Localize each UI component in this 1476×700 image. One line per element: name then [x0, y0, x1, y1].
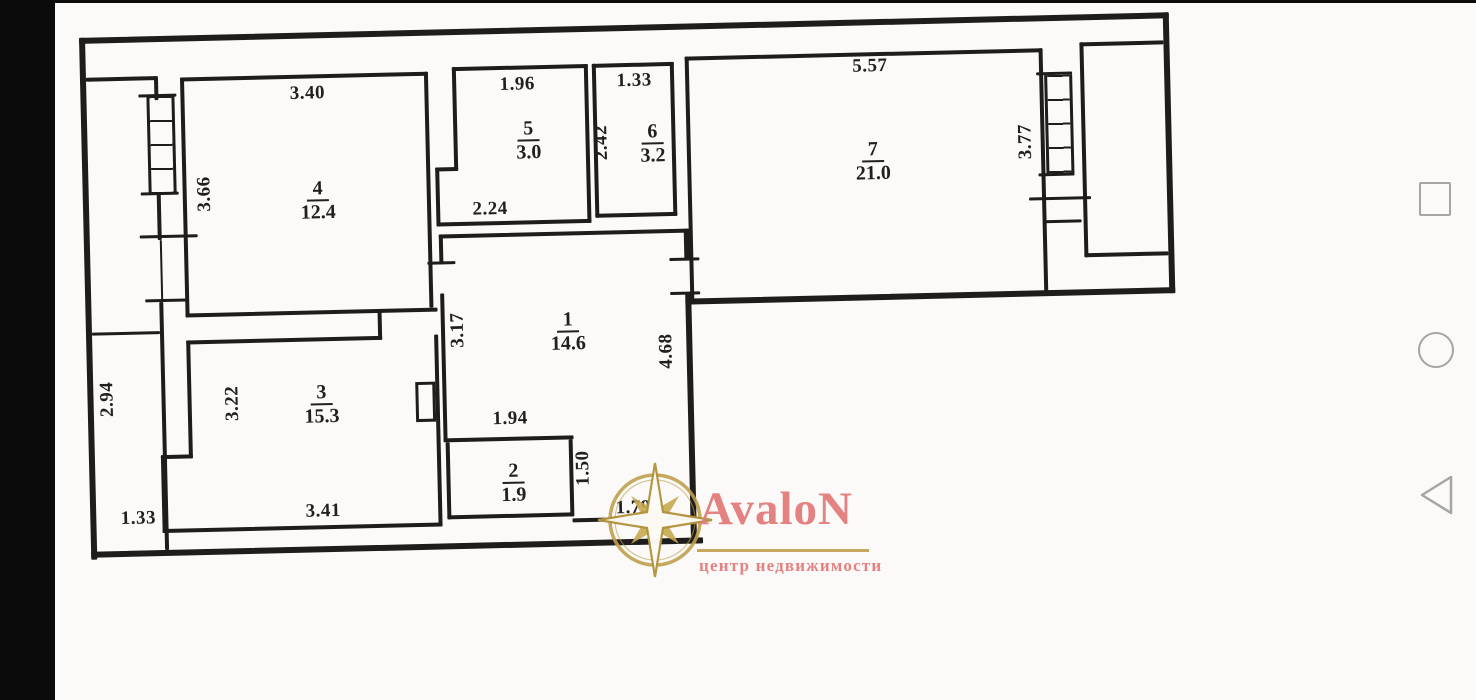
- wall-room2-left: [446, 442, 452, 519]
- window-right-cap-bottom: [1038, 172, 1074, 176]
- wall-balcony-top: [1079, 40, 1163, 46]
- screen: { "plan": { "title": "apartment floor pl…: [0, 0, 1476, 700]
- back-button-triangle-icon[interactable]: [1417, 474, 1455, 516]
- room-area: 21.0: [845, 163, 901, 185]
- wall-room3-left-a: [186, 340, 193, 458]
- wall-outer-top: [79, 12, 1169, 44]
- letterbox-top: [0, 0, 1476, 3]
- floor-plan: 3.40 3.66 1.96 2.24 1.33 2.42 5.57 3.77 …: [79, 12, 1181, 560]
- room-label-4: 4 12.4: [289, 178, 346, 224]
- balcony-door-leaf: [160, 240, 163, 302]
- wall-room5-bottom: [436, 219, 591, 227]
- wall-outer-bottom: [91, 537, 703, 557]
- dimension-label: 2.42: [590, 120, 613, 165]
- wall-room6-bottom: [595, 212, 677, 218]
- room-area: 1.9: [486, 484, 542, 506]
- dimension-label: 1.33: [612, 69, 657, 92]
- dimension-label: 3.22: [221, 381, 244, 426]
- door-tick-room7-b: [670, 291, 700, 295]
- room-number: 2: [502, 461, 525, 485]
- room-number: 7: [862, 139, 885, 163]
- room-number: 4: [306, 178, 329, 202]
- dimension-label: 2.94: [96, 377, 119, 422]
- recents-button-square-icon[interactable]: [1419, 182, 1451, 216]
- wall-room4-left: [180, 77, 190, 317]
- wall-room4-right: [424, 72, 434, 308]
- wall-room5-left-a: [452, 67, 458, 170]
- dimension-label: 4.68: [655, 329, 678, 374]
- room-area: 3.2: [625, 145, 681, 167]
- room-label-2: 2 1.9: [485, 460, 542, 506]
- wall-niche-room3: [415, 382, 436, 422]
- dimension-label: 1.96: [495, 73, 540, 96]
- wall-room7-bottom: [685, 287, 1175, 305]
- wall-room4-bottom: [186, 308, 438, 318]
- room-area: 14.6: [540, 333, 596, 355]
- wall-loggia-top: [86, 76, 156, 82]
- room-area: 15.3: [294, 406, 350, 428]
- door-tick-right-1: [1029, 196, 1091, 200]
- dimension-label: 1.94: [488, 407, 533, 430]
- room-label-7: 7 21.0: [845, 139, 902, 185]
- door-tick-room7-a: [669, 257, 699, 261]
- room-label-3: 3 15.3: [293, 382, 350, 428]
- dimension-label: 1.50: [572, 446, 595, 491]
- room-label-6: 6 3.2: [624, 121, 681, 167]
- wall-room6-top: [592, 62, 674, 68]
- door-tick-hall: [427, 261, 455, 265]
- wall-room3-bottom: [163, 522, 443, 533]
- window-symbol-left: [146, 96, 176, 195]
- room-number: 5: [517, 118, 540, 142]
- wall-room3-jog-h: [161, 454, 193, 459]
- room-label-1: 1 14.6: [540, 309, 597, 355]
- wall-loggia-divider: [92, 331, 160, 336]
- room-number: 6: [641, 121, 664, 145]
- wall-room3-jog-v: [378, 312, 383, 340]
- dimension-label: 3.17: [446, 308, 469, 353]
- door-tick-left-2: [145, 298, 187, 302]
- dimension-label: 2.24: [468, 198, 513, 221]
- dimension-label: 3.66: [193, 172, 216, 217]
- dimension-label: 5.57: [848, 55, 893, 78]
- wall-room4-top: [180, 72, 428, 82]
- letterbox-left: [0, 0, 55, 700]
- wall-balcony-bottom: [1084, 251, 1168, 257]
- room-number: 1: [557, 309, 580, 333]
- dimension-label: 3.40: [285, 82, 330, 105]
- wall-room7-left: [685, 57, 695, 303]
- wall-room2-bottom: [447, 512, 573, 519]
- wall-outer-left: [79, 38, 97, 560]
- wall-outer-right-lower-b: [685, 294, 697, 544]
- dimension-label: 1.33: [116, 507, 161, 530]
- wall-room5-left-b: [435, 167, 440, 226]
- dimension-label: 3.77: [1014, 119, 1037, 164]
- dimension-label: 3.41: [301, 500, 346, 523]
- wall-room2-top: [444, 435, 574, 442]
- wall-loggia-right-b: [157, 192, 162, 240]
- door-tick-left-1: [140, 234, 198, 238]
- room-area: 12.4: [290, 202, 346, 224]
- dimension-label: 1.79: [611, 496, 656, 519]
- room-number: 3: [310, 382, 333, 406]
- brand-underline: [697, 549, 869, 552]
- room-label-5: 5 3.0: [500, 118, 557, 164]
- home-button-circle-icon[interactable]: [1418, 332, 1454, 368]
- wall-room3-top: [186, 336, 382, 345]
- door-tick-right-2: [1044, 219, 1082, 223]
- wall-hall-left-a: [439, 234, 444, 264]
- wall-balcony-left: [1079, 42, 1088, 257]
- wall-room5-top: [452, 64, 588, 71]
- wall-hall-top: [439, 229, 688, 239]
- window-symbol-right: [1044, 75, 1074, 176]
- brand-tagline: центр недвижимости: [699, 556, 882, 576]
- room-area: 3.0: [501, 142, 557, 164]
